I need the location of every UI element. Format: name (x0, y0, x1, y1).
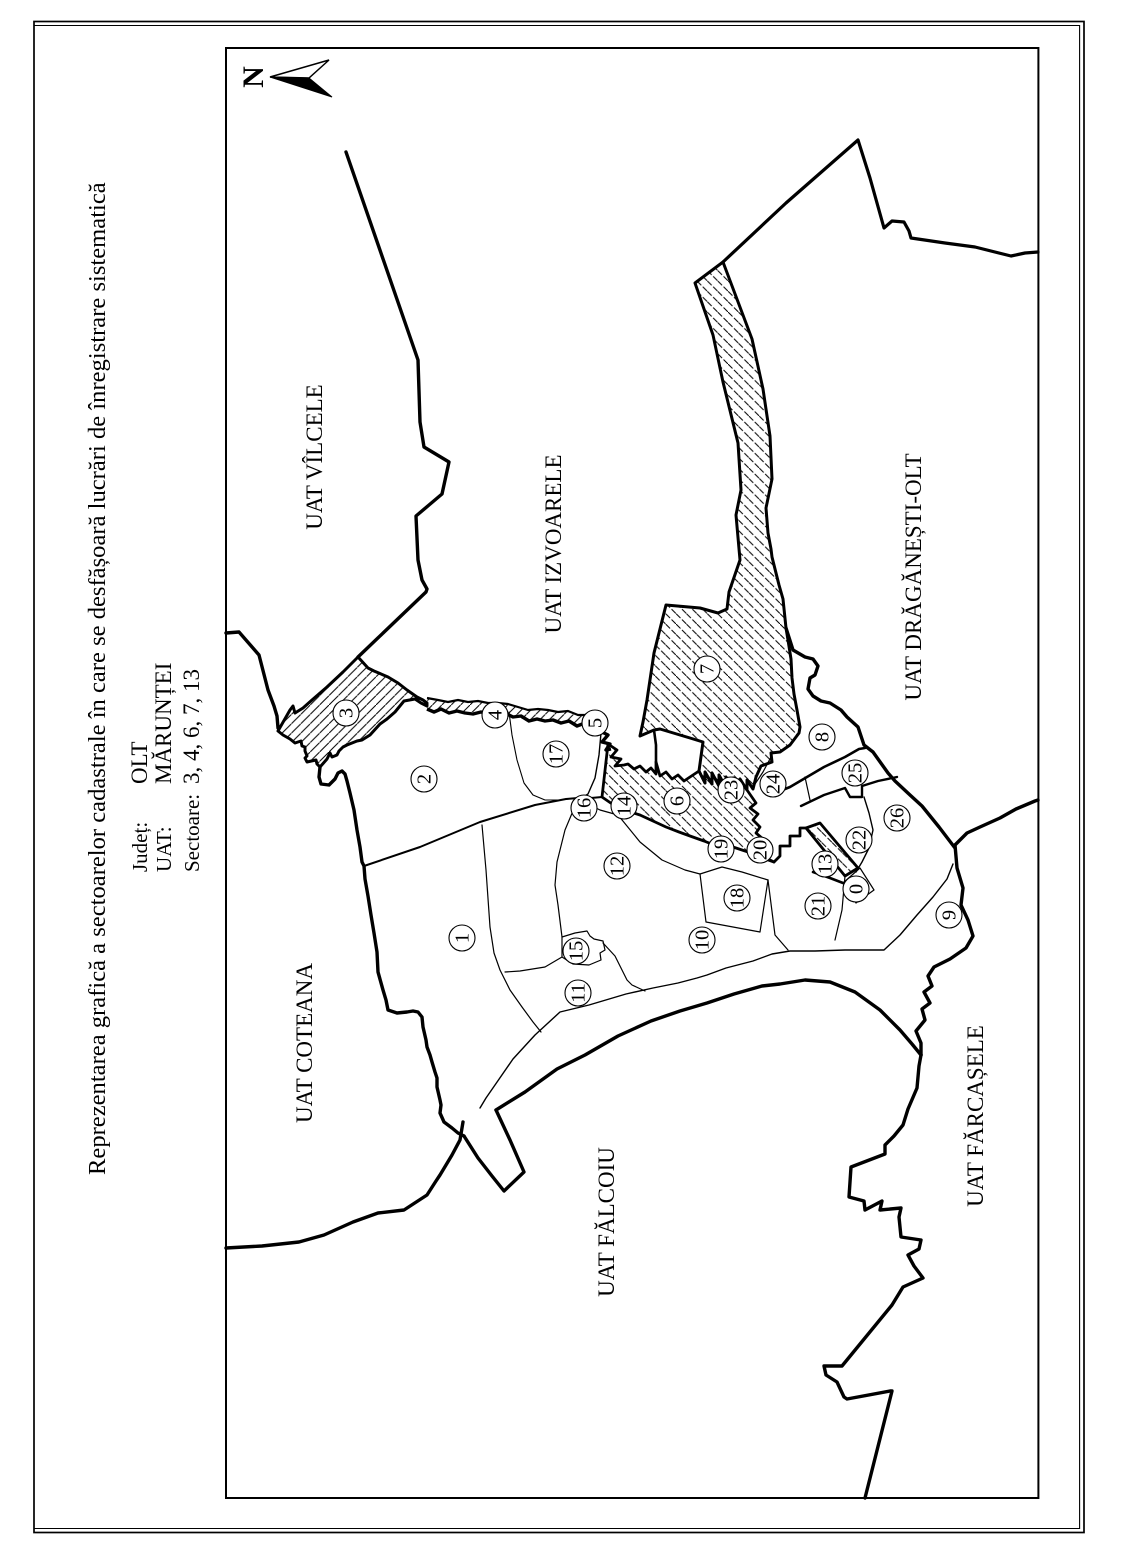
svg-text:Sectoare:: Sectoare: (180, 794, 204, 872)
svg-text:21: 21 (808, 896, 830, 917)
svg-text:0: 0 (846, 884, 868, 894)
svg-text:UAT VÎLCELE: UAT VÎLCELE (302, 384, 327, 529)
svg-text:7: 7 (697, 664, 719, 674)
svg-text:10: 10 (692, 930, 714, 951)
svg-text:UAT COTEANA: UAT COTEANA (292, 963, 317, 1123)
svg-text:22: 22 (849, 830, 871, 851)
svg-text:23: 23 (721, 780, 743, 801)
svg-text:13: 13 (815, 854, 837, 875)
svg-text:N: N (237, 66, 270, 88)
svg-text:8: 8 (812, 732, 834, 742)
svg-text:1: 1 (452, 933, 474, 943)
svg-text:25: 25 (845, 763, 867, 784)
svg-text:9: 9 (939, 910, 961, 920)
svg-text:UAT FĂRCAȘELE: UAT FĂRCAȘELE (963, 1025, 988, 1207)
svg-text:12: 12 (607, 856, 629, 877)
svg-text:5: 5 (585, 718, 607, 728)
svg-text:16: 16 (574, 798, 596, 819)
svg-text:15: 15 (566, 941, 588, 962)
svg-text:6: 6 (667, 796, 689, 806)
svg-text:14: 14 (614, 796, 636, 817)
svg-text:UAT DRĂGĂNEȘTI-OLT: UAT DRĂGĂNEȘTI-OLT (901, 453, 926, 700)
svg-text:4: 4 (485, 710, 507, 720)
svg-text:OLT: OLT (127, 741, 152, 784)
svg-text:19: 19 (711, 839, 733, 860)
svg-text:20: 20 (750, 840, 772, 861)
svg-text:Reprezentarea grafică a sectoa: Reprezentarea grafică a sectoarelor cada… (84, 182, 111, 1175)
svg-text:18: 18 (727, 888, 749, 909)
svg-text:MĂRUNȚEI: MĂRUNȚEI (151, 663, 177, 784)
svg-text:24: 24 (763, 774, 785, 795)
svg-text:UAT:: UAT: (152, 826, 176, 872)
svg-text:3: 3 (336, 708, 358, 718)
svg-text:17: 17 (546, 744, 568, 765)
svg-text:UAT IZVOARELE: UAT IZVOARELE (541, 454, 566, 633)
svg-text:2: 2 (414, 774, 436, 784)
svg-text:26: 26 (887, 808, 909, 829)
svg-text:11: 11 (568, 983, 590, 1003)
svg-text:Județ:: Județ: (128, 822, 152, 872)
svg-text:3, 4, 6, 7, 13: 3, 4, 6, 7, 13 (179, 669, 204, 784)
svg-text:UAT FĂLCOIU: UAT FĂLCOIU (594, 1147, 619, 1297)
